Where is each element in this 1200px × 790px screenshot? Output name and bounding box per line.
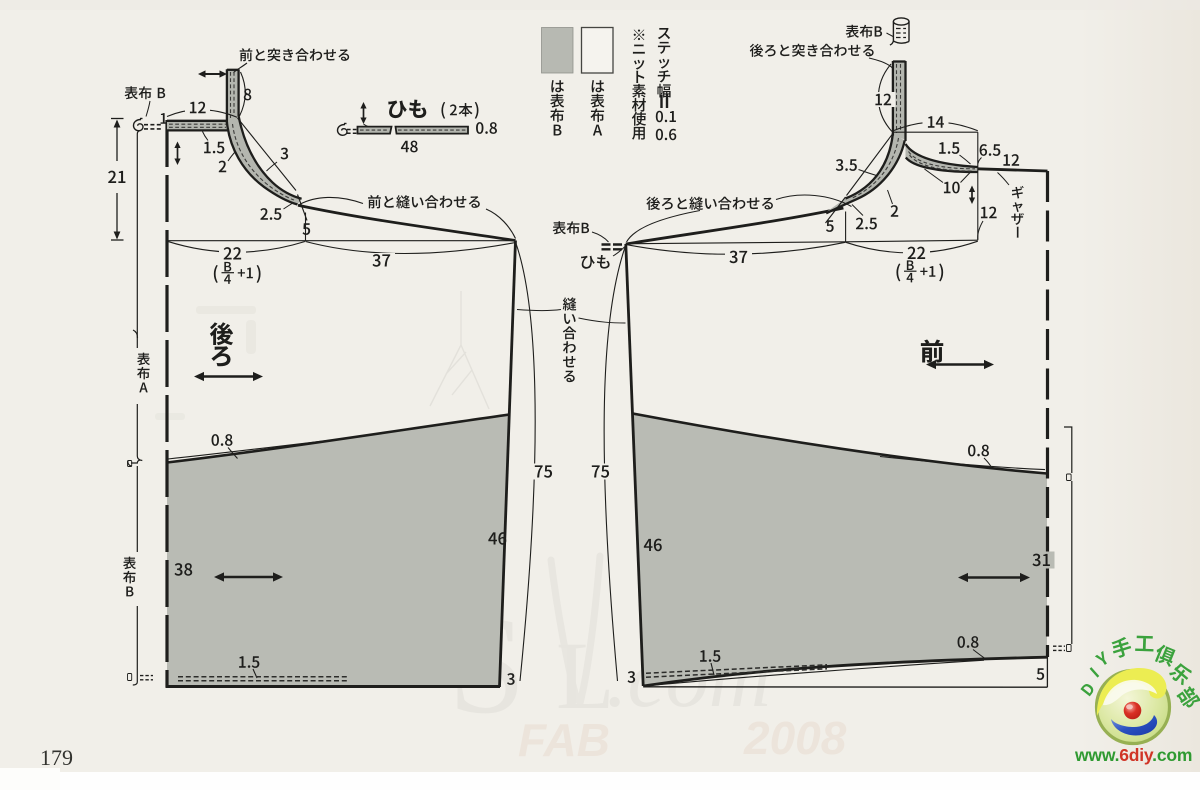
svg-text:179: 179 bbox=[40, 745, 73, 770]
svg-text:2008: 2008 bbox=[743, 712, 847, 764]
svg-text:www.6diy.com: www.6diy.com bbox=[1074, 745, 1192, 765]
svg-text:FAB: FAB bbox=[518, 714, 610, 766]
